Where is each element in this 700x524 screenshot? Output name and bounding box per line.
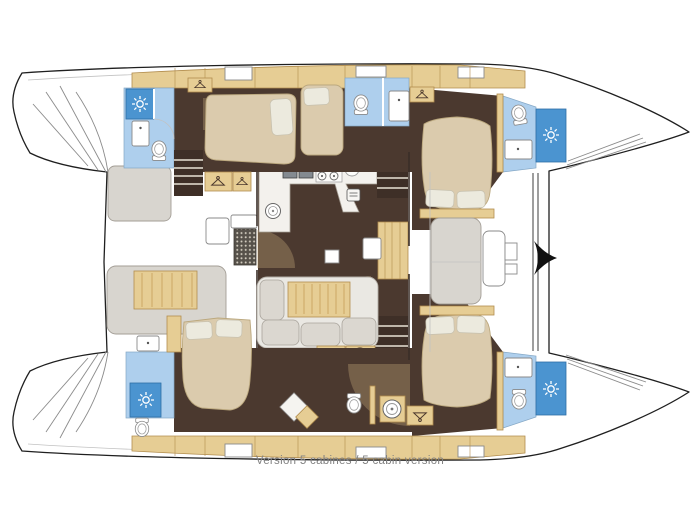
cockpit-bench-top xyxy=(108,166,171,221)
cockpit-table xyxy=(134,271,197,309)
foredeck-seat xyxy=(431,218,481,304)
deck-grate-icon xyxy=(234,229,256,265)
toilet-icon xyxy=(354,95,368,114)
washbasin-icon xyxy=(505,358,532,377)
floor-plan-canvas: Version 5 cabines / 5 cabin version xyxy=(0,0,700,524)
port-mid-bathroom xyxy=(345,78,409,126)
pillow xyxy=(304,87,330,105)
pillow xyxy=(457,191,486,209)
shower-stall xyxy=(536,362,566,415)
floor-plan-page: Version 5 cabines / 5 cabin version xyxy=(0,0,700,524)
foredeck-step xyxy=(505,264,517,274)
cockpit-storage-module xyxy=(231,215,257,228)
shower-stall xyxy=(130,383,161,417)
headboard xyxy=(420,306,494,315)
port-mid-cabin xyxy=(301,85,343,155)
shower-stall xyxy=(126,89,154,119)
washbasin-icon xyxy=(389,91,409,121)
wc-wall xyxy=(370,386,375,424)
washing-machine-icon xyxy=(380,396,405,422)
toilet-icon xyxy=(347,394,361,413)
port-aft-bathroom xyxy=(124,88,174,168)
caption-text: Version 5 cabines / 5 cabin version xyxy=(256,455,444,467)
foredeck-step xyxy=(505,243,517,260)
nav-seat xyxy=(363,238,381,259)
washbasin-icon xyxy=(505,140,532,159)
mast-post xyxy=(325,250,339,263)
saloon-table xyxy=(288,282,350,317)
dishwasher-icon xyxy=(266,204,281,219)
pillow xyxy=(216,320,243,338)
foredeck-bench xyxy=(483,231,505,286)
port-aft-stairs xyxy=(174,150,203,196)
shower-stall xyxy=(536,109,566,162)
toilet-icon xyxy=(135,418,149,436)
saloon xyxy=(257,150,408,362)
headboard xyxy=(420,209,494,218)
starboard-fwd-cabin xyxy=(420,306,494,407)
port-aft-cabin xyxy=(203,94,296,164)
washbasin-icon xyxy=(137,336,159,351)
pillow xyxy=(186,321,213,339)
toilet-icon xyxy=(512,390,526,409)
coffee-machine-icon xyxy=(347,189,360,201)
pillow xyxy=(270,98,293,135)
cockpit-side-module xyxy=(206,218,229,244)
toilet-icon xyxy=(152,141,166,160)
pillow xyxy=(457,316,486,334)
nav-cabinet xyxy=(378,222,408,279)
washbasin-icon xyxy=(132,121,149,146)
